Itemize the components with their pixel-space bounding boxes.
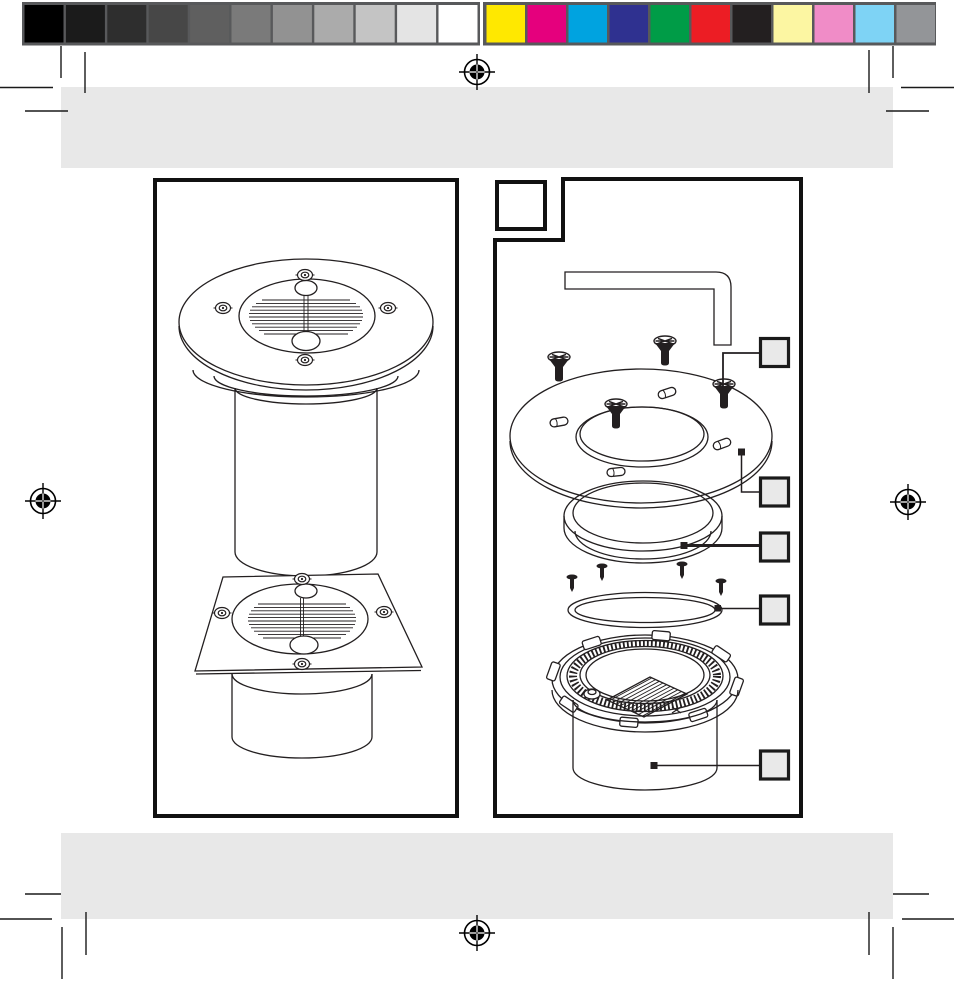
callout-box [761,596,789,624]
bottom-gray-band [61,833,893,919]
callout-dot [715,605,722,612]
color-swatch [651,5,690,43]
grayscale-swatch [232,5,271,43]
grayscale-calibration-bar [22,2,480,46]
top-gray-band [61,87,893,168]
grayscale-swatch [149,5,188,43]
grayscale-swatch [25,5,64,43]
color-swatch [774,5,813,43]
callout-box [761,751,789,779]
led-window [290,636,318,654]
light-sensor-window [295,281,317,296]
page-canvas [0,0,954,1006]
led-window [292,332,320,351]
slot-hole [607,467,626,477]
color-swatch [733,5,772,43]
grayscale-swatch [397,5,436,43]
callout-box [761,478,789,506]
figure-label-box [497,182,545,229]
color-swatch [897,5,936,43]
grayscale-swatch [107,5,146,43]
grayscale-swatch [439,5,478,43]
color-swatch [815,5,854,43]
color-swatch [487,5,526,43]
callout-dot [681,542,688,549]
grayscale-swatch [66,5,105,43]
callout-dot [651,762,658,769]
light-sensor-window [295,584,317,598]
grayscale-swatch [356,5,395,43]
callout-box [761,339,789,367]
registration-mark-icon [459,54,495,90]
print-sheet [0,0,954,1006]
rim-clip [652,630,671,641]
grayscale-swatch [190,5,229,43]
callout-dot [738,449,745,456]
left-figure-panel [155,180,457,816]
color-swatch [692,5,731,43]
grayscale-swatch [273,5,312,43]
color-calibration-bar [483,2,936,46]
color-swatch [528,5,567,43]
color-swatch [856,5,895,43]
right-figure-panel [495,179,801,816]
color-swatch [569,5,608,43]
registration-mark-icon [25,483,61,519]
grayscale-swatch [314,5,353,43]
color-swatch [610,5,649,43]
registration-mark-icon [890,484,926,520]
callout-box [761,533,789,561]
registration-mark-icon [459,915,495,951]
